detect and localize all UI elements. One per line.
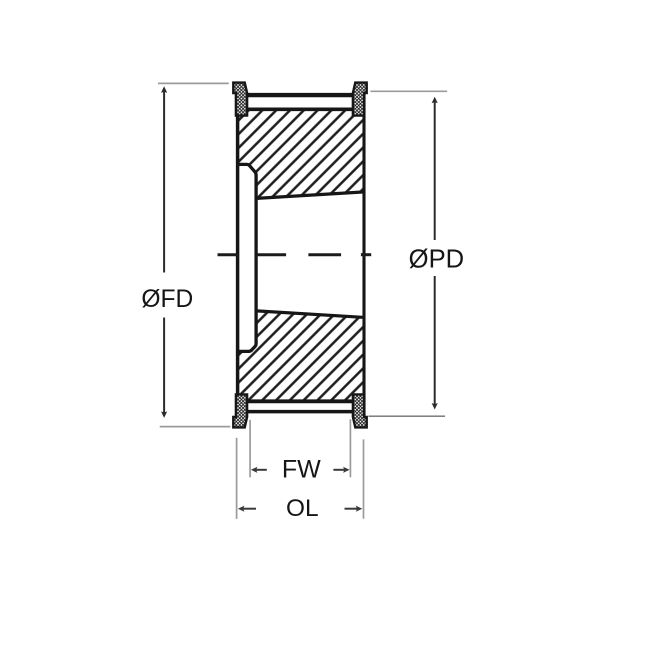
- svg-text:OL: OL: [286, 495, 319, 522]
- svg-text:FW: FW: [282, 456, 321, 484]
- svg-text:ØFD: ØFD: [141, 286, 193, 313]
- svg-text:ØPD: ØPD: [409, 245, 464, 273]
